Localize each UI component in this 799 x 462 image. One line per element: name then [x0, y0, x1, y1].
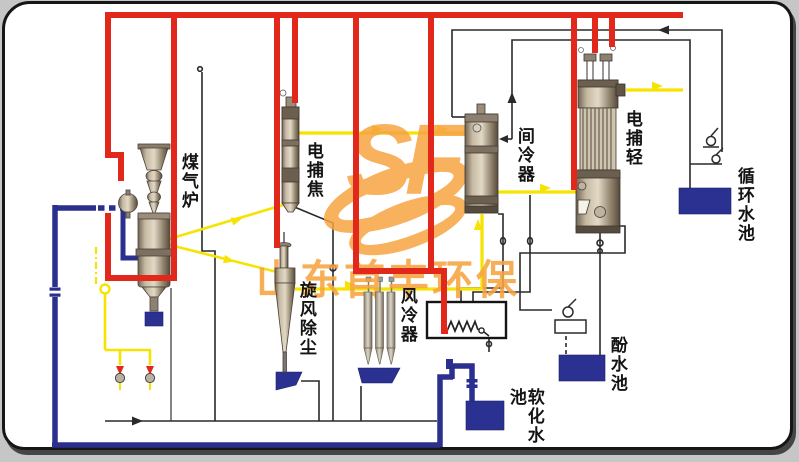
furnace-side-pot — [119, 194, 138, 213]
cooling-coil-box — [427, 302, 506, 338]
label-air-cooler: 风冷器 — [398, 287, 416, 344]
gas-furnace-vessel — [119, 144, 173, 311]
cyclone-dust-cart — [276, 372, 302, 390]
label-cyclone-dust-removal: 旋风除尘 — [297, 281, 315, 357]
air-cooler-tubes — [364, 292, 395, 364]
label-softened-water-pool: 软化水池 — [507, 388, 543, 462]
intercooler-vessel — [465, 104, 498, 213]
label-intercooler: 间冷器 — [515, 127, 533, 184]
softened-water-pool — [466, 401, 504, 430]
aircooler-dust-cart — [358, 368, 400, 383]
diagram-over-layer — [0, 0, 799, 462]
electric-light-tar-catcher-vessel — [576, 46, 625, 234]
cyclone-dust-remover-vessel — [275, 232, 295, 372]
label-electric-light-tar-catcher: 电捕轻 — [623, 110, 641, 167]
label-gas-furnace: 煤气炉 — [179, 153, 197, 210]
phenol-water-pool — [559, 355, 605, 381]
electric-tar-catcher-vessel — [280, 90, 299, 212]
process-flow-diagram: SF 山东首丰环保 — [0, 0, 799, 462]
small-collection-box — [145, 312, 163, 326]
label-phenol-water-pool: 酚水池 — [608, 336, 626, 393]
label-electric-tar-catcher: 电捕焦 — [304, 142, 322, 199]
label-circulating-water-pool: 循环水池 — [735, 167, 753, 243]
circulating-water-pool — [679, 188, 731, 214]
